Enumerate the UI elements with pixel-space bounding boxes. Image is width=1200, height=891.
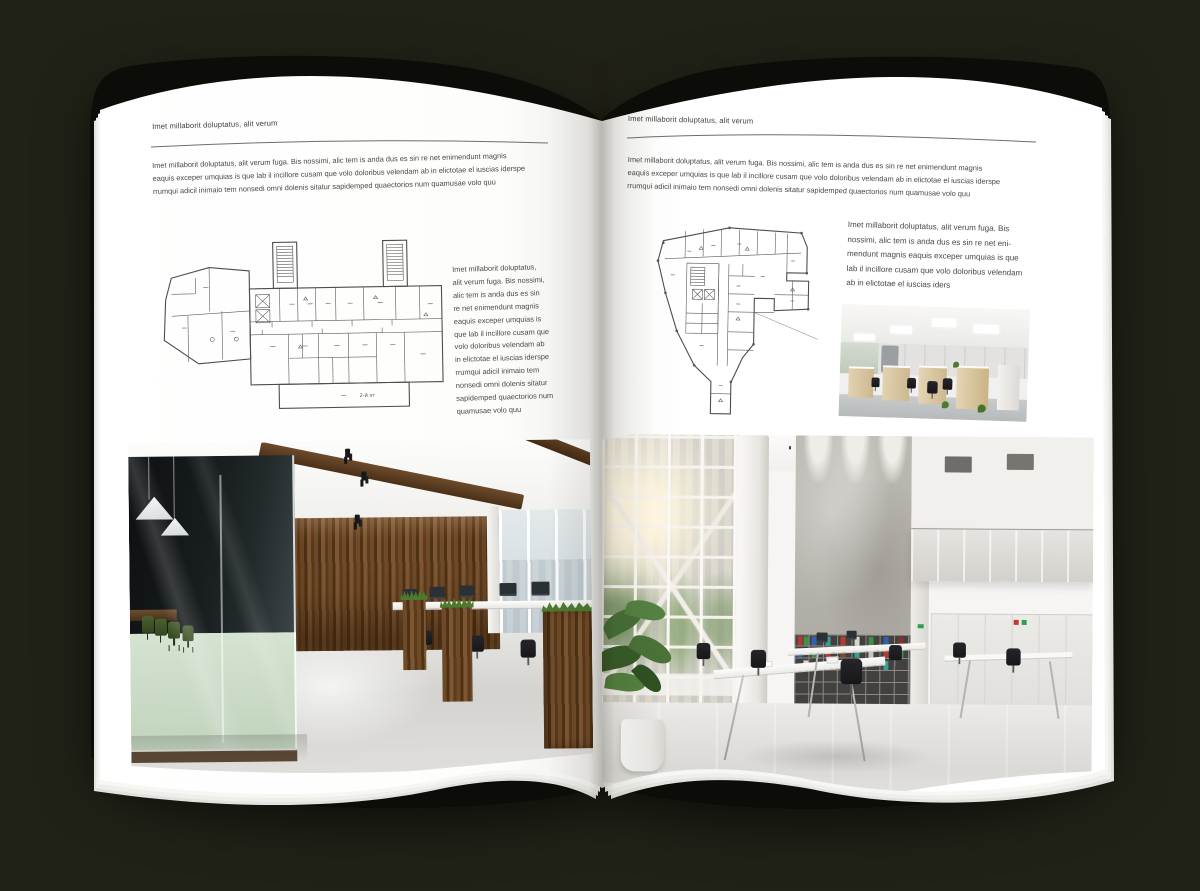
binder: [798, 636, 803, 645]
left-intro-paragraph: Imet millaborit doluptatus, alit verum f…: [152, 150, 526, 199]
light-panel: [932, 318, 957, 328]
first-aid-sign: [1014, 620, 1019, 625]
light-panel: [973, 324, 1000, 334]
planter: [402, 597, 426, 670]
right-side-text: Imet millaborit doluptatus, alit verum f…: [846, 218, 1024, 296]
desk-plant: [953, 361, 959, 367]
track-light: [345, 448, 350, 457]
left-header-rule: [150, 136, 550, 150]
office-photo-workstations: [838, 304, 1029, 422]
office-chair: [519, 640, 538, 669]
monitor: [817, 633, 828, 643]
office-chair: [906, 378, 918, 395]
binder: [804, 637, 809, 646]
left-page-header: Imet millaborit doluptatus, alit verum: [152, 118, 278, 130]
right-page: Imet millaborit doluptatus, alit verum I…: [602, 66, 1114, 808]
right-intro-paragraph: Imet millaborit doluptatus, alit verum f…: [627, 154, 1000, 202]
floor-shadow: [131, 734, 307, 762]
light-panel: [854, 334, 875, 341]
office-chair: [941, 378, 954, 396]
wall-column: [487, 507, 500, 633]
potted-plant: [599, 600, 694, 774]
office-chair: [952, 642, 968, 666]
office-chair: [871, 377, 881, 392]
cabinet: [955, 366, 988, 409]
right-page-header: Imet millaborit doluptatus, alit verum: [628, 114, 754, 126]
cabinet-end-panel: [997, 365, 1021, 410]
office-photo-wood-interior: [128, 439, 593, 776]
exit-sign: [1022, 620, 1027, 625]
office-photo-atrium: [599, 434, 1094, 799]
exit-sign: [918, 624, 924, 628]
binder: [841, 637, 846, 646]
office-chair: [838, 658, 865, 699]
downlight-glow: [840, 436, 870, 483]
office-chair: [888, 645, 904, 669]
monitor: [430, 587, 445, 599]
track-light: [362, 471, 367, 480]
mezzanine: [911, 436, 1094, 582]
plant-pot: [620, 719, 664, 771]
downlight-glow: [877, 436, 907, 483]
balcony-band: [911, 528, 1093, 582]
office-chair: [695, 643, 712, 669]
office-chair: [748, 649, 767, 678]
vent-slit: [1006, 454, 1033, 470]
floorplan-caption: 2-й эт: [360, 392, 376, 399]
magazine-mockup-scene: Imet millaborit doluptatus, alit verum I…: [0, 0, 1200, 891]
monitor: [531, 582, 549, 596]
leaf: [627, 629, 675, 669]
planter: [442, 605, 473, 702]
glass-meeting-room: [128, 456, 298, 763]
floorplan-left: 2-й эт: [150, 223, 453, 418]
floorplan-right: [638, 214, 837, 422]
glass-reflection: [128, 456, 297, 751]
monitor: [460, 586, 475, 598]
monitor: [847, 630, 857, 639]
left-side-text: Imet millaborit doluptatus, alit verum f…: [452, 261, 554, 419]
vent-slit: [944, 457, 971, 473]
track-light: [355, 515, 360, 524]
downlight-glow: [803, 435, 833, 482]
floor-shadow: [737, 739, 934, 773]
monitor: [499, 583, 516, 596]
right-header-rule: [626, 130, 1038, 146]
planter-large: [543, 608, 593, 748]
light-panel: [890, 326, 913, 335]
office-chair: [925, 381, 939, 401]
left-page: Imet millaborit doluptatus, alit verum I…: [96, 66, 602, 808]
binder: [812, 637, 817, 646]
office-chair: [1005, 648, 1023, 675]
